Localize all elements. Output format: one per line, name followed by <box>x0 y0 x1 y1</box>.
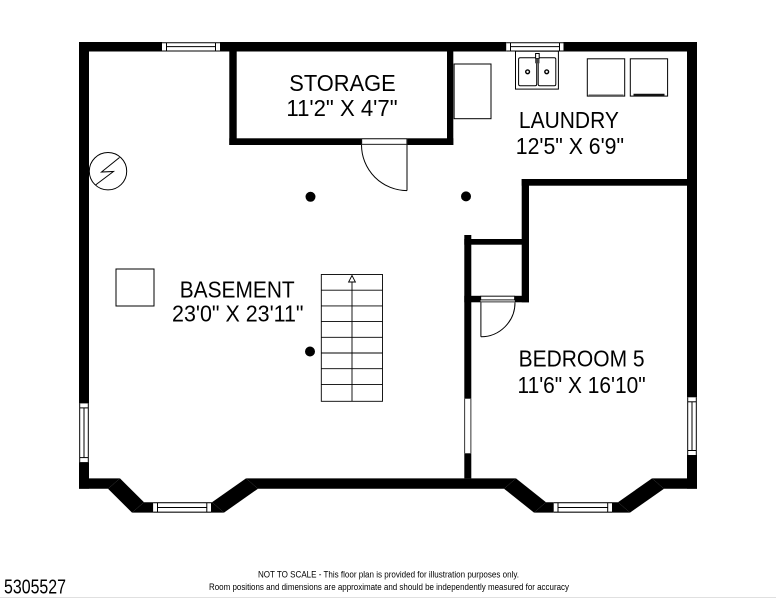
svg-text:23'0" X 23'11": 23'0" X 23'11" <box>172 301 304 327</box>
svg-text:BASEMENT: BASEMENT <box>180 276 295 302</box>
svg-text:Room positions and dimensions: Room positions and dimensions are approx… <box>209 582 570 592</box>
svg-text:11'2" X 4'7": 11'2" X 4'7" <box>286 95 397 121</box>
svg-text:LAUNDRY: LAUNDRY <box>519 107 619 133</box>
svg-text:5305527: 5305527 <box>4 576 66 598</box>
svg-text:STORAGE: STORAGE <box>289 70 395 96</box>
svg-text:NOT TO SCALE - This floor plan: NOT TO SCALE - This floor plan is provid… <box>258 569 519 579</box>
svg-text:11'6" X 16'10": 11'6" X 16'10" <box>518 372 646 398</box>
svg-text:12'5" X 6'9": 12'5" X 6'9" <box>516 133 624 159</box>
svg-text:BEDROOM 5: BEDROOM 5 <box>519 346 645 372</box>
